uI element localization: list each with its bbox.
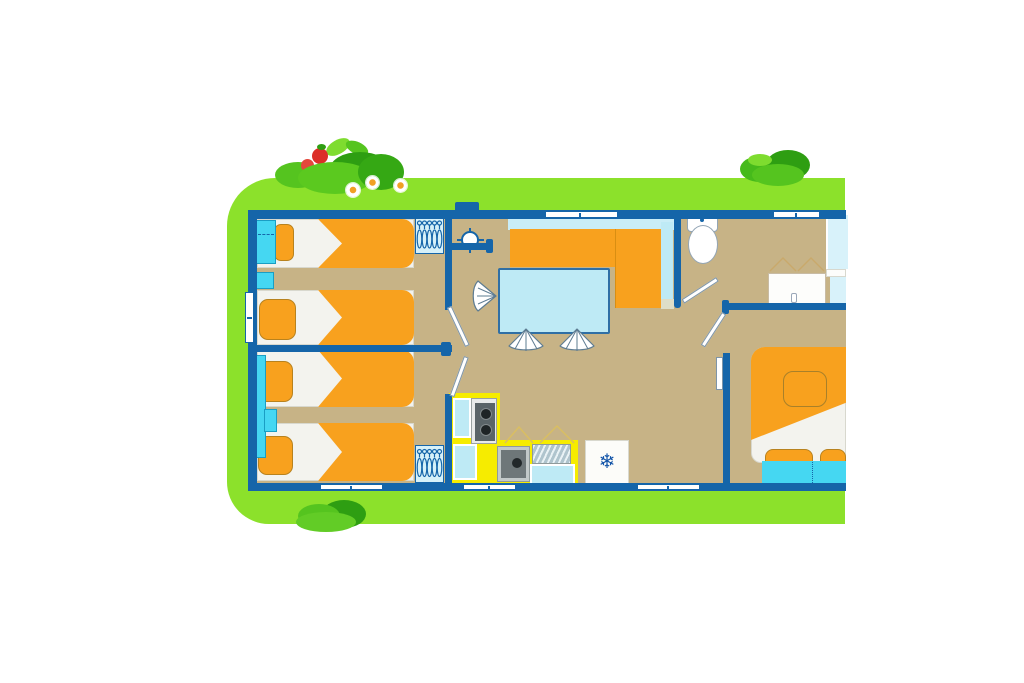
shower-ledge (826, 269, 846, 277)
daisy-icon (346, 183, 360, 197)
cabinet-front (453, 398, 471, 438)
basin-faucet (791, 293, 797, 303)
bush-blob (752, 164, 804, 186)
nightstand (255, 220, 276, 264)
hangers-icon (416, 446, 443, 482)
window (637, 484, 700, 490)
bush-top-right (740, 148, 818, 188)
burner (480, 408, 492, 420)
floor-plan-illustration: ❄ (0, 0, 1024, 683)
entrance-step (455, 202, 479, 213)
sink-drain (512, 458, 522, 468)
nightstand-dashed-line (258, 234, 274, 235)
sofa-arm (615, 229, 662, 308)
kitchen-sink (497, 446, 530, 482)
wall-outer-left (248, 210, 257, 491)
bed-bench (762, 461, 846, 484)
double-bed-pillow-outline (783, 371, 827, 407)
window-tick (667, 486, 669, 489)
window-tick (350, 486, 352, 489)
sofa-end-table (661, 299, 674, 309)
burner (480, 424, 492, 436)
dish-drainer (532, 444, 571, 464)
window (463, 484, 516, 490)
dining-chair (504, 326, 548, 352)
strawberry-leaf-icon (317, 144, 326, 150)
window (320, 484, 383, 490)
hangers-icon (416, 218, 443, 253)
bath-cabinet-lines (767, 256, 827, 273)
window (773, 211, 820, 218)
shower-tray (830, 277, 846, 303)
wall-bath-bedroom (729, 303, 846, 310)
bush-bottom (296, 500, 372, 534)
window (545, 211, 618, 218)
hanger-wardrobe (415, 217, 444, 254)
daisy-icon (394, 179, 407, 192)
bench-divider (812, 462, 813, 483)
dining-chair (554, 326, 600, 352)
bedside-shelf (255, 272, 274, 289)
daisy-icon (366, 176, 379, 189)
window (245, 292, 254, 343)
bush-blob (748, 154, 772, 166)
window-tick (247, 317, 252, 319)
bush-blob (296, 512, 356, 532)
wall-end-cap (486, 239, 493, 253)
dining-table (498, 268, 610, 334)
window-tick (488, 486, 490, 489)
window-tick (579, 213, 581, 217)
door-panel-parked (716, 357, 723, 390)
hanger-wardrobe (415, 445, 444, 483)
stove (471, 398, 497, 444)
wall-living-wc (674, 219, 681, 308)
wall-bedroom2-side (445, 394, 452, 483)
wall-master-side (723, 353, 730, 483)
bed-pillow (259, 299, 296, 340)
bedside-shelf (264, 409, 277, 432)
snowflake-icon: ❄ (586, 441, 628, 481)
bed-pillow (274, 224, 294, 261)
shower-cubicle (826, 215, 848, 269)
sofa-seat (510, 229, 616, 267)
toilet-bowl (688, 225, 718, 264)
wall-bedroom-divider (257, 345, 452, 352)
dining-chair (472, 276, 498, 316)
cabinet-front (453, 444, 477, 480)
wall-entrance-divider (445, 219, 452, 310)
window-tick (795, 213, 797, 217)
counter-flap-lines (500, 424, 580, 445)
bush-top-left (270, 140, 410, 200)
sofa-side-panel (661, 222, 673, 299)
bathroom-basin-counter (768, 273, 826, 305)
wall-end-cap (441, 342, 451, 356)
